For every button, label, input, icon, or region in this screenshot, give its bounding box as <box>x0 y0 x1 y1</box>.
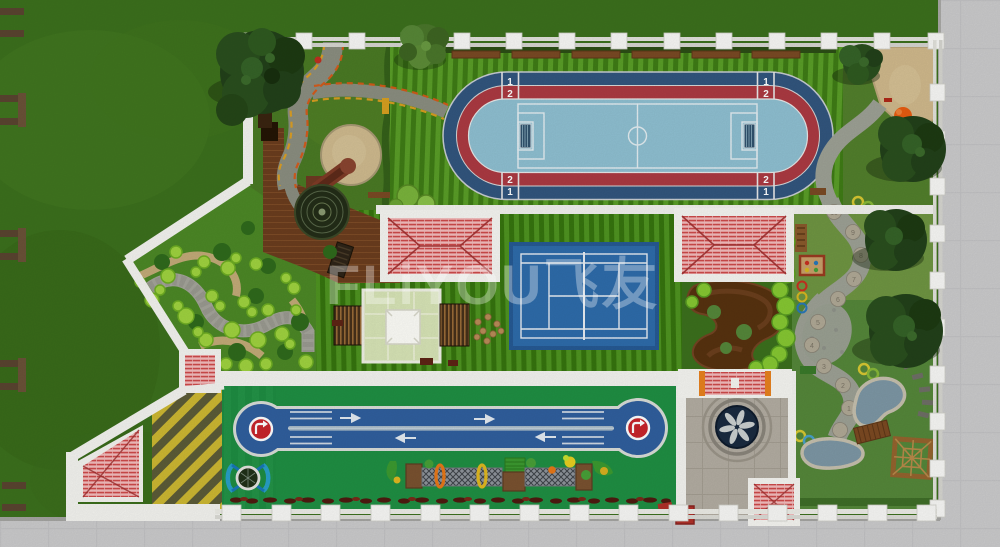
svg-text:FLiYOU飞友: FLiYOU飞友 <box>326 253 659 316</box>
